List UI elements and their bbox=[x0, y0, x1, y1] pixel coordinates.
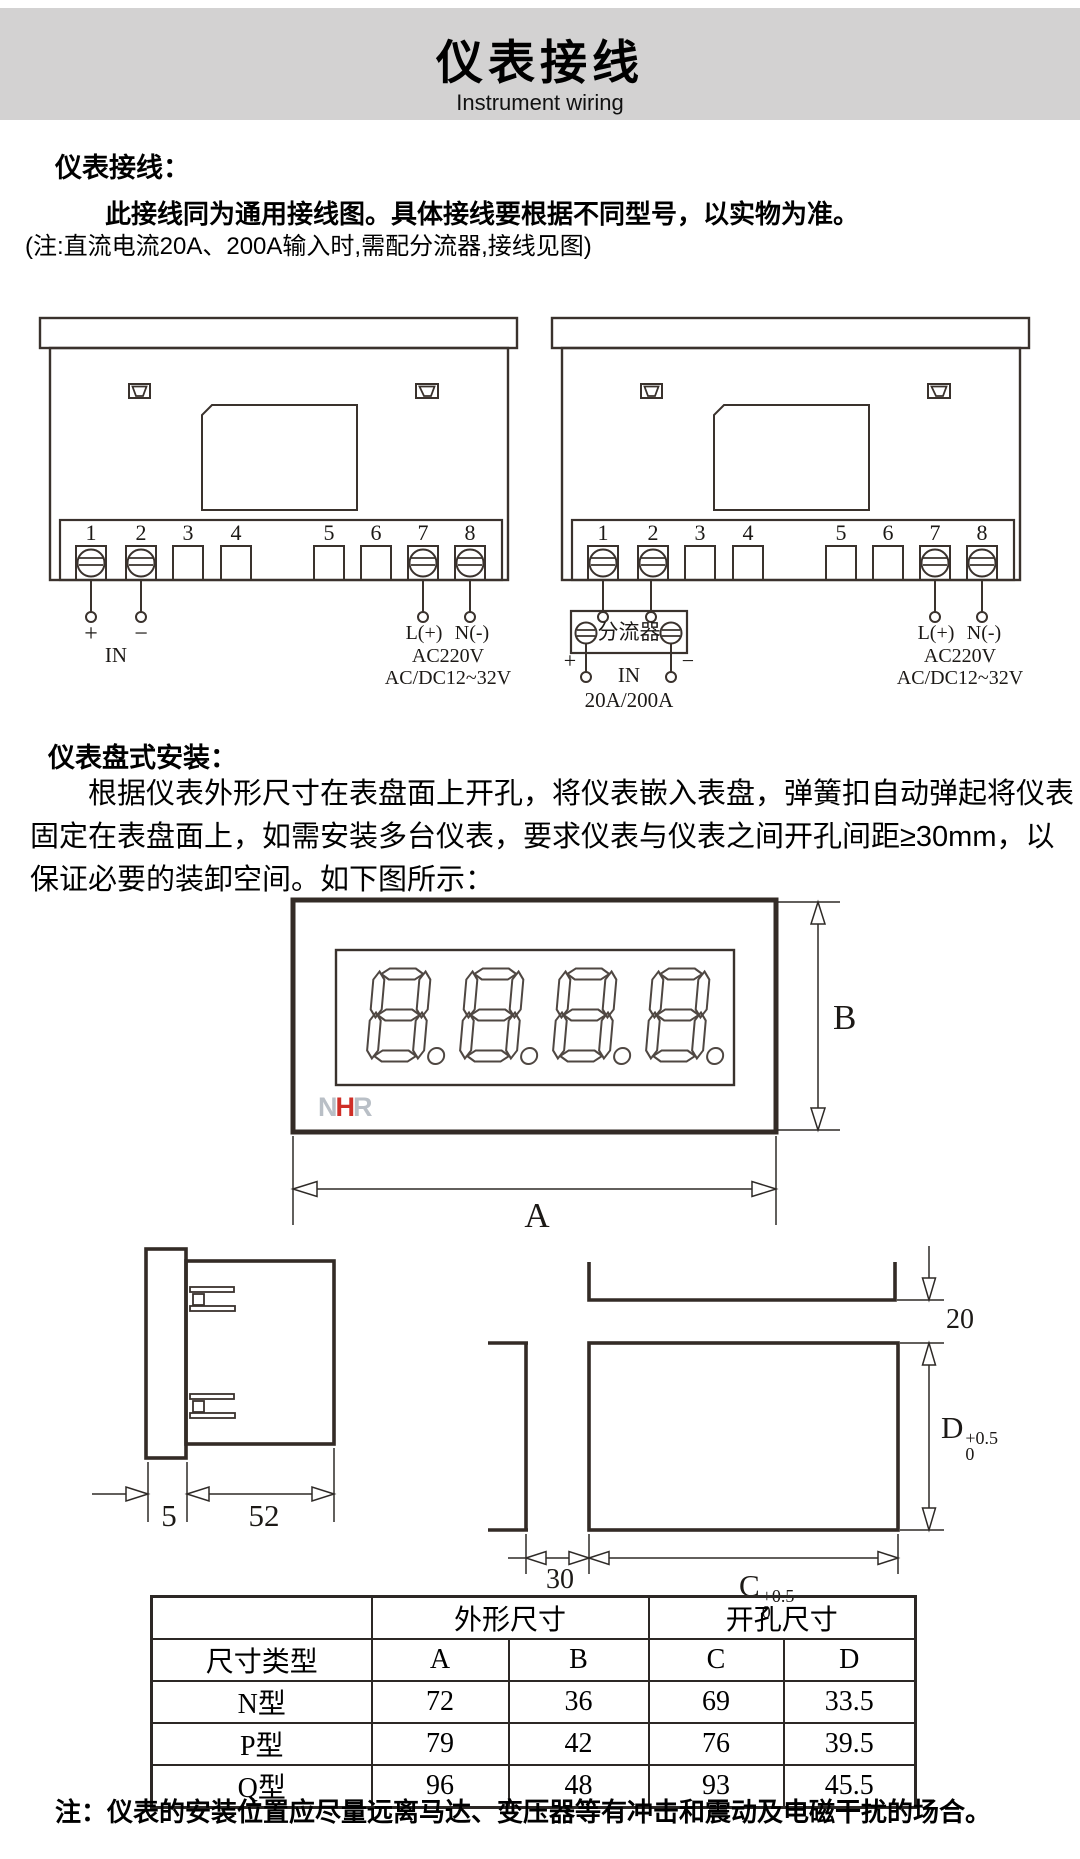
terminal-number: 1 bbox=[86, 522, 97, 544]
mount-paragraph-line: 固定在表盘面上，如需安装多台仪表，要求仪表与仪表之间开孔间距≥30mm，以 bbox=[30, 813, 1055, 855]
logo-letter-r: R bbox=[353, 1092, 371, 1122]
ac-label: AC220V bbox=[412, 646, 484, 666]
line-label: L(+) bbox=[918, 623, 955, 643]
dim-d-letter: D bbox=[941, 1410, 963, 1445]
seven-segment-display bbox=[366, 969, 731, 1065]
shunt-in-label: IN bbox=[618, 665, 640, 686]
col-header-type: 尺寸类型 bbox=[152, 1639, 372, 1681]
side-view-drawing bbox=[92, 1249, 334, 1522]
terminal-number: 8 bbox=[977, 522, 988, 544]
table-corner-cell bbox=[152, 1597, 372, 1640]
input-plus-label: + bbox=[84, 622, 98, 646]
manual-page: 仪表接线 Instrument wiring 仪表接线： 此接线同为通用接线图。… bbox=[0, 0, 1080, 1859]
dim-d-tolerance-sub: 0 bbox=[965, 1446, 998, 1462]
dimension-table: 外形尺寸 开孔尺寸 尺寸类型 A B C D N型 72 36 69 33.5 … bbox=[150, 1595, 917, 1809]
input-minus-label: − bbox=[134, 622, 148, 646]
ac-label: AC220V bbox=[924, 646, 996, 666]
acdc-label: AC/DC12~32V bbox=[897, 668, 1023, 688]
panel-meter-drawing bbox=[293, 900, 840, 1225]
line-label: L(+) bbox=[406, 623, 443, 643]
value-cell: 79 bbox=[372, 1723, 509, 1765]
dim-5-52-lines bbox=[92, 1448, 334, 1522]
dim-5-label: 5 bbox=[161, 1500, 177, 1531]
terminal-number: 8 bbox=[465, 522, 476, 544]
terminal-number: 3 bbox=[695, 522, 706, 544]
left-meter-drawing bbox=[40, 318, 517, 622]
shunt-plus-label: + bbox=[564, 650, 576, 672]
brand-logo: NHR bbox=[318, 1094, 371, 1121]
table-group-header-row: 外形尺寸 开孔尺寸 bbox=[152, 1597, 916, 1640]
footer-note: 注：仪表的安装位置应尽量远离马达、变压器等有冲击和震动及电磁干扰的场合。 bbox=[55, 1792, 991, 1829]
terminal-number: 4 bbox=[743, 522, 754, 544]
dim-b-label: B bbox=[833, 1000, 856, 1035]
acdc-label: AC/DC12~32V bbox=[385, 668, 511, 688]
input-in-label: IN bbox=[105, 645, 127, 666]
terminal-number: 5 bbox=[324, 522, 335, 544]
shunt-name-label: 分流器 bbox=[598, 622, 661, 643]
mount-paragraph-line: 根据仪表外形尺寸在表盘面上开孔，将仪表嵌入表盘，弹簧扣自动弹起将仪表 bbox=[88, 770, 1074, 812]
col-header-c: C bbox=[649, 1639, 784, 1681]
terminal-number: 3 bbox=[183, 522, 194, 544]
dim-52-label: 52 bbox=[249, 1500, 280, 1531]
shunt-range-label: 20A/200A bbox=[585, 690, 674, 711]
value-cell: 36 bbox=[509, 1681, 649, 1723]
mount-paragraph-line: 保证必要的装卸空间。如下图所示： bbox=[30, 856, 494, 898]
dim-a-label: A bbox=[524, 1198, 549, 1233]
terminal-number: 1 bbox=[598, 522, 609, 544]
group-header-outer: 外形尺寸 bbox=[372, 1597, 649, 1640]
terminal-number: 7 bbox=[418, 522, 429, 544]
col-header-b: B bbox=[509, 1639, 649, 1681]
dim-20-label: 20 bbox=[946, 1306, 974, 1334]
dim-b-lines bbox=[778, 902, 840, 1130]
table-row: P型 79 42 76 39.5 bbox=[152, 1723, 916, 1765]
group-header-cutout: 开孔尺寸 bbox=[649, 1597, 916, 1640]
table-column-header-row: 尺寸类型 A B C D bbox=[152, 1639, 916, 1681]
cutout-view-drawing bbox=[488, 1246, 944, 1574]
terminal-number: 2 bbox=[136, 522, 147, 544]
value-cell: 42 bbox=[509, 1723, 649, 1765]
terminal-number: 6 bbox=[883, 522, 894, 544]
col-header-a: A bbox=[372, 1639, 509, 1681]
logo-letter-h: H bbox=[336, 1092, 354, 1122]
col-header-d: D bbox=[784, 1639, 916, 1681]
value-cell: 69 bbox=[649, 1681, 784, 1723]
value-cell: 76 bbox=[649, 1723, 784, 1765]
value-cell: 39.5 bbox=[784, 1723, 916, 1765]
terminal-number: 4 bbox=[231, 522, 242, 544]
table-row: N型 72 36 69 33.5 bbox=[152, 1681, 916, 1723]
neutral-label: N(-) bbox=[455, 623, 489, 643]
neutral-label: N(-) bbox=[967, 623, 1001, 643]
shunt-minus-label: − bbox=[682, 650, 694, 672]
row-type-cell: P型 bbox=[152, 1723, 372, 1765]
terminal-number: 6 bbox=[371, 522, 382, 544]
terminal-number: 5 bbox=[836, 522, 847, 544]
value-cell: 72 bbox=[372, 1681, 509, 1723]
panel-edge bbox=[488, 1343, 528, 1530]
row-type-cell: N型 bbox=[152, 1681, 372, 1723]
value-cell: 33.5 bbox=[784, 1681, 916, 1723]
line-art-layer bbox=[0, 0, 1080, 1859]
dim-30-label: 30 bbox=[546, 1566, 574, 1594]
terminal-number: 2 bbox=[648, 522, 659, 544]
terminal-number: 7 bbox=[930, 522, 941, 544]
spring-clips bbox=[190, 1287, 235, 1418]
dim-20-d-lines bbox=[897, 1246, 944, 1530]
dimension-table-wrap: 外形尺寸 开孔尺寸 尺寸类型 A B C D N型 72 36 69 33.5 … bbox=[150, 1595, 917, 1809]
dim-d-label: D+0.50 bbox=[941, 1412, 998, 1462]
logo-letter-n: N bbox=[318, 1092, 336, 1122]
